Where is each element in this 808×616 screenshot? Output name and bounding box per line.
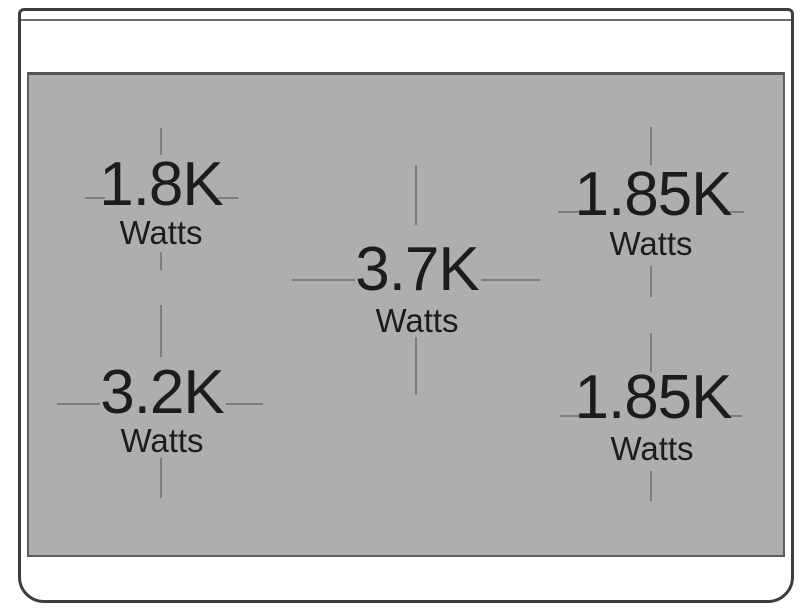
crosshair-left-line xyxy=(292,279,355,281)
crosshair-bottom-line xyxy=(160,252,162,270)
backguard-trim-line xyxy=(21,19,791,21)
crosshair-right-line xyxy=(481,279,540,281)
crosshair-top-line xyxy=(415,165,417,225)
burner-unit-label: Watts xyxy=(610,432,693,465)
crosshair-bottom-line xyxy=(650,266,652,297)
burner-unit-label: Watts xyxy=(120,424,203,457)
crosshair-left-line xyxy=(57,403,100,405)
crosshair-bottom-line xyxy=(650,471,652,501)
crosshair-bottom-line xyxy=(415,337,417,395)
crosshair-top-line xyxy=(160,305,162,357)
burner-power-label: 1.85K xyxy=(574,367,731,429)
burner-power-label: 3.7K xyxy=(355,239,479,301)
burner-unit-label: Watts xyxy=(609,227,692,260)
crosshair-bottom-line xyxy=(160,458,162,498)
range-top-view-diagram: 1.8K Watts 1.85K Watts 3.7K Watts 3.2K W… xyxy=(0,0,808,616)
burner-power-label: 1.85K xyxy=(574,164,731,226)
burner-unit-label: Watts xyxy=(119,216,202,249)
crosshair-right-line xyxy=(226,403,263,405)
burner-power-label: 3.2K xyxy=(100,362,224,424)
burner-unit-label: Watts xyxy=(375,304,458,337)
burner-power-label: 1.8K xyxy=(99,154,223,216)
